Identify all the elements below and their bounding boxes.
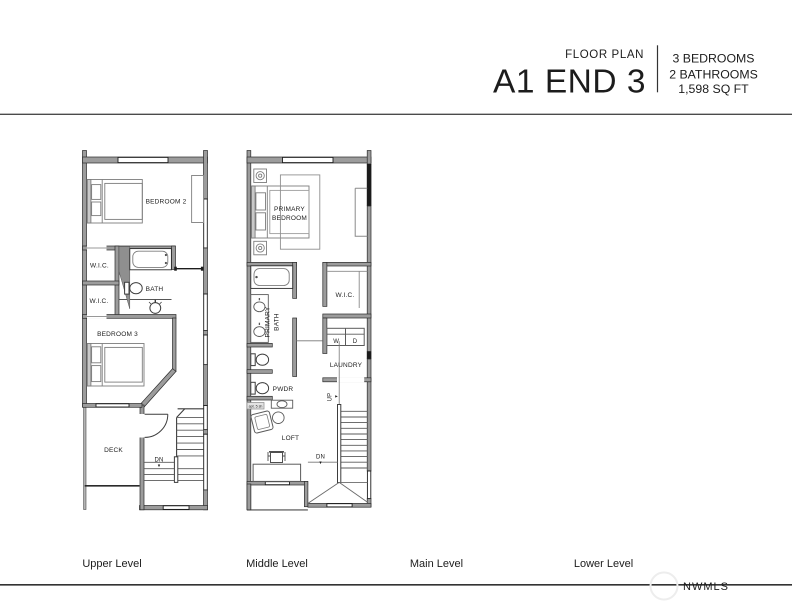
- svg-text:DN: DN: [316, 455, 325, 461]
- svg-text:LOFT: LOFT: [282, 435, 299, 442]
- svg-text:W: W: [333, 339, 339, 345]
- svg-text:NWMLS: NWMLS: [683, 581, 729, 593]
- svg-text:A1 END 3: A1 END 3: [493, 64, 646, 101]
- svg-text:DN: DN: [154, 458, 163, 464]
- svg-text:apt. 5 sh: apt. 5 sh: [249, 405, 263, 409]
- svg-text:FLOOR PLAN: FLOOR PLAN: [565, 49, 644, 61]
- svg-text:BEDROOM: BEDROOM: [272, 215, 307, 222]
- svg-text:W.I.C.: W.I.C.: [90, 298, 109, 305]
- svg-text:BEDROOM 3: BEDROOM 3: [97, 331, 138, 338]
- svg-text:UP: UP: [328, 393, 334, 402]
- svg-text:LAUNDRY: LAUNDRY: [330, 362, 363, 369]
- svg-text:BATH: BATH: [274, 313, 281, 331]
- svg-text:Upper Level: Upper Level: [82, 558, 141, 570]
- svg-text:PWDR: PWDR: [273, 386, 294, 393]
- svg-text:PRIMARY: PRIMARY: [274, 206, 305, 213]
- svg-text:BEDROOM 2: BEDROOM 2: [146, 199, 187, 206]
- svg-text:2 BATHROOMS: 2 BATHROOMS: [669, 68, 758, 82]
- svg-text:BATH: BATH: [146, 286, 164, 293]
- svg-text:3 BEDROOMS: 3 BEDROOMS: [673, 52, 755, 66]
- svg-text:W.I.C.: W.I.C.: [336, 292, 355, 299]
- svg-text:W.I.C.: W.I.C.: [90, 262, 109, 269]
- svg-text:Middle Level: Middle Level: [246, 558, 308, 570]
- svg-text:PRIMARY: PRIMARY: [265, 306, 272, 337]
- svg-text:1,598 SQ FT: 1,598 SQ FT: [678, 82, 749, 96]
- svg-text:DECK: DECK: [104, 447, 123, 454]
- svg-text:Main Level: Main Level: [410, 558, 463, 570]
- svg-text:Lower Level: Lower Level: [574, 558, 633, 570]
- svg-text:D: D: [353, 339, 358, 345]
